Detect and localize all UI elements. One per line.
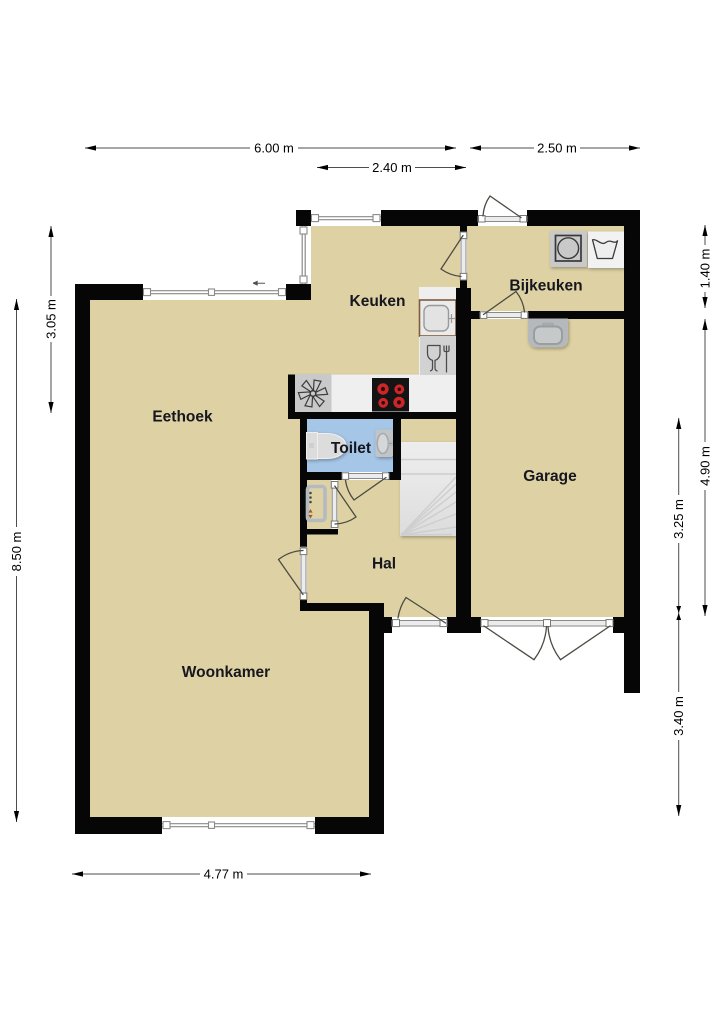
svg-text:3.05 m: 3.05 m	[44, 299, 59, 339]
svg-text:Toilet: Toilet	[331, 440, 371, 457]
svg-text:2.40 m: 2.40 m	[372, 160, 412, 175]
svg-text:6.00 m: 6.00 m	[254, 141, 294, 156]
svg-text:Woonkamer: Woonkamer	[182, 664, 270, 681]
svg-text:Garage: Garage	[523, 468, 577, 485]
svg-text:3.40 m: 3.40 m	[671, 696, 686, 736]
svg-text:4.90 m: 4.90 m	[698, 446, 713, 486]
svg-text:Eethoek: Eethoek	[152, 409, 213, 426]
svg-text:Hal: Hal	[372, 556, 396, 573]
svg-text:1.40 m: 1.40 m	[698, 249, 713, 289]
svg-text:8.50 m: 8.50 m	[9, 532, 24, 572]
svg-text:Bijkeuken: Bijkeuken	[509, 278, 582, 295]
svg-text:Keuken: Keuken	[350, 293, 406, 310]
svg-text:4.77 m: 4.77 m	[204, 867, 244, 882]
svg-text:2.50 m: 2.50 m	[537, 141, 577, 156]
svg-text:3.25 m: 3.25 m	[671, 499, 686, 539]
